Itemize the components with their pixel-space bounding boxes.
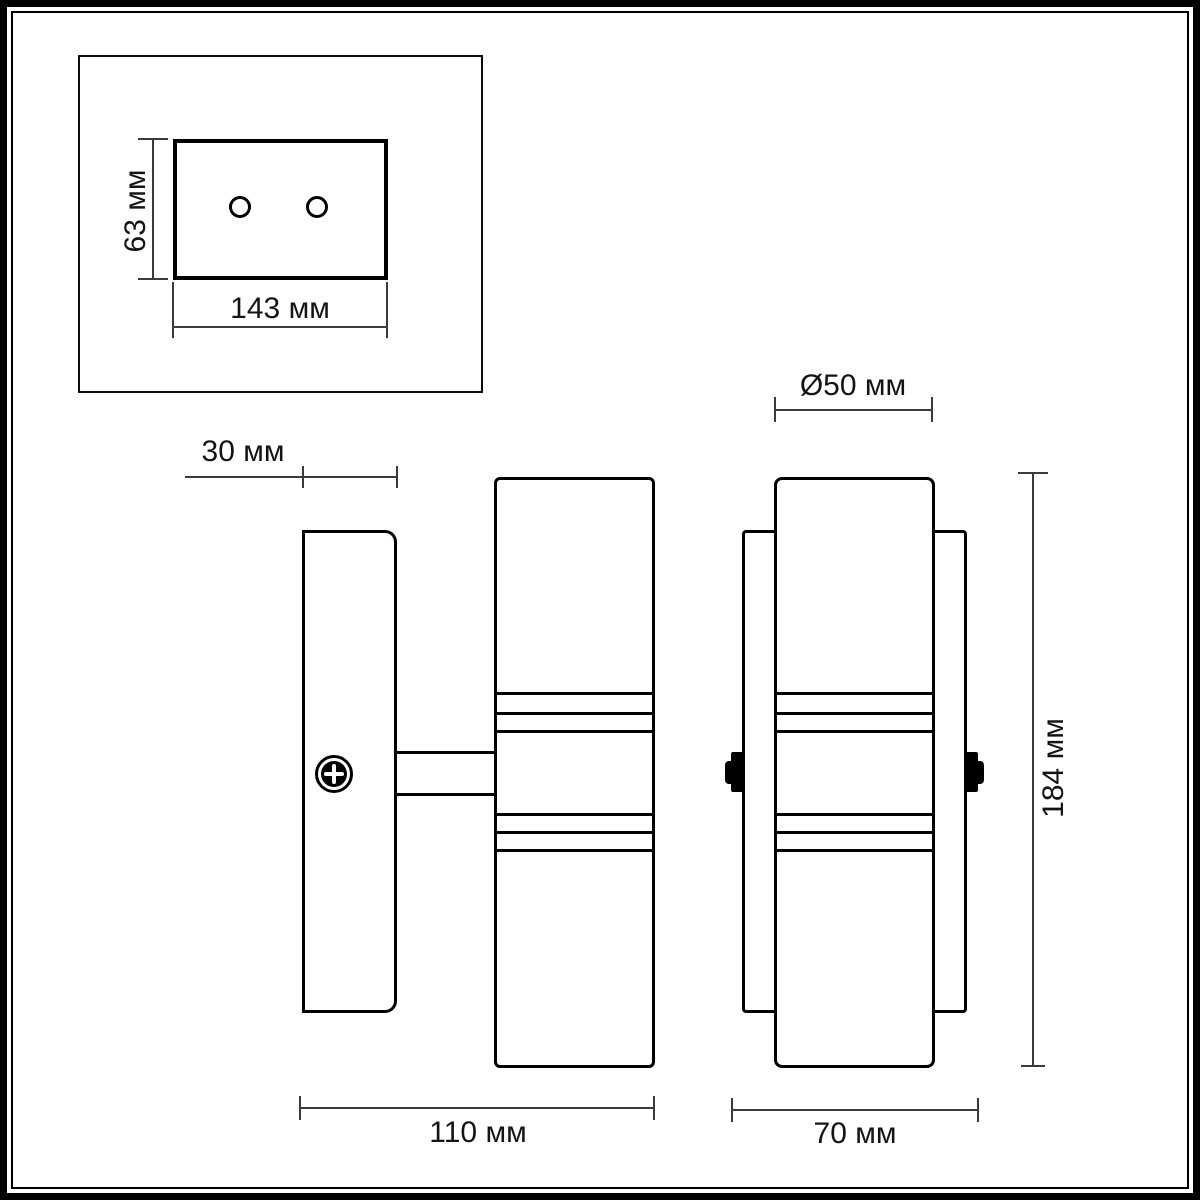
dim-ext-143-left	[172, 282, 174, 338]
dim-label-184: 184 мм	[1039, 718, 1069, 818]
side-knob-right-nub	[976, 761, 984, 784]
ring-line	[775, 849, 934, 852]
dim-label-143: 143 мм	[230, 294, 330, 324]
dim-tick-63-bottom	[138, 278, 168, 280]
dim-tick-110-left	[299, 1096, 301, 1120]
ring-line	[775, 712, 934, 715]
dim-line-70	[732, 1109, 979, 1111]
mounting-plate-face	[173, 139, 388, 280]
screw-slot-vertical	[332, 764, 336, 784]
dim-line-30	[185, 476, 398, 478]
dim-label-50: Ø50 мм	[800, 371, 906, 401]
dim-line-110	[300, 1107, 655, 1109]
ring-line	[495, 730, 654, 733]
dim-tick-50-left	[774, 397, 776, 422]
mounting-arm-side-view	[397, 751, 494, 796]
dim-line-184	[1032, 473, 1034, 1067]
mounting-hole-right	[306, 196, 328, 218]
dim-ext-143-right	[386, 282, 388, 338]
dim-tick-184-top	[1018, 472, 1048, 474]
dim-tick-70-right	[977, 1098, 979, 1122]
lamp-cylinder-front-view	[774, 477, 935, 1068]
side-knob-left-nub	[725, 761, 733, 784]
mounting-hole-left	[229, 196, 251, 218]
ring-line	[775, 692, 934, 695]
ring-line	[495, 712, 654, 715]
dim-line-63	[152, 139, 154, 280]
technical-drawing-canvas: 63 мм 143 мм 30 мм 110 мм Ø50 мм	[0, 0, 1200, 1200]
dim-tick-70-left	[731, 1098, 733, 1122]
ring-line	[495, 849, 654, 852]
dim-tick-30-left	[302, 466, 304, 488]
dim-label-70: 70 мм	[814, 1119, 897, 1149]
dim-line-143	[173, 326, 387, 328]
ring-line	[495, 813, 654, 816]
lamp-cylinder-side-view	[494, 477, 655, 1068]
ring-line	[495, 831, 654, 834]
dim-tick-63-top	[138, 138, 168, 140]
dim-tick-50-right	[931, 397, 933, 422]
dim-line-50	[775, 409, 933, 411]
ring-line	[495, 692, 654, 695]
dim-label-63: 63 мм	[121, 170, 151, 253]
dim-tick-110-right	[653, 1096, 655, 1120]
ring-line	[775, 730, 934, 733]
ring-line	[775, 813, 934, 816]
dim-tick-184-bottom	[1021, 1065, 1045, 1067]
ring-line	[775, 831, 934, 834]
dim-label-110: 110 мм	[429, 1118, 526, 1148]
dim-tick-30-right	[396, 466, 398, 488]
dim-label-30: 30 мм	[202, 437, 285, 467]
